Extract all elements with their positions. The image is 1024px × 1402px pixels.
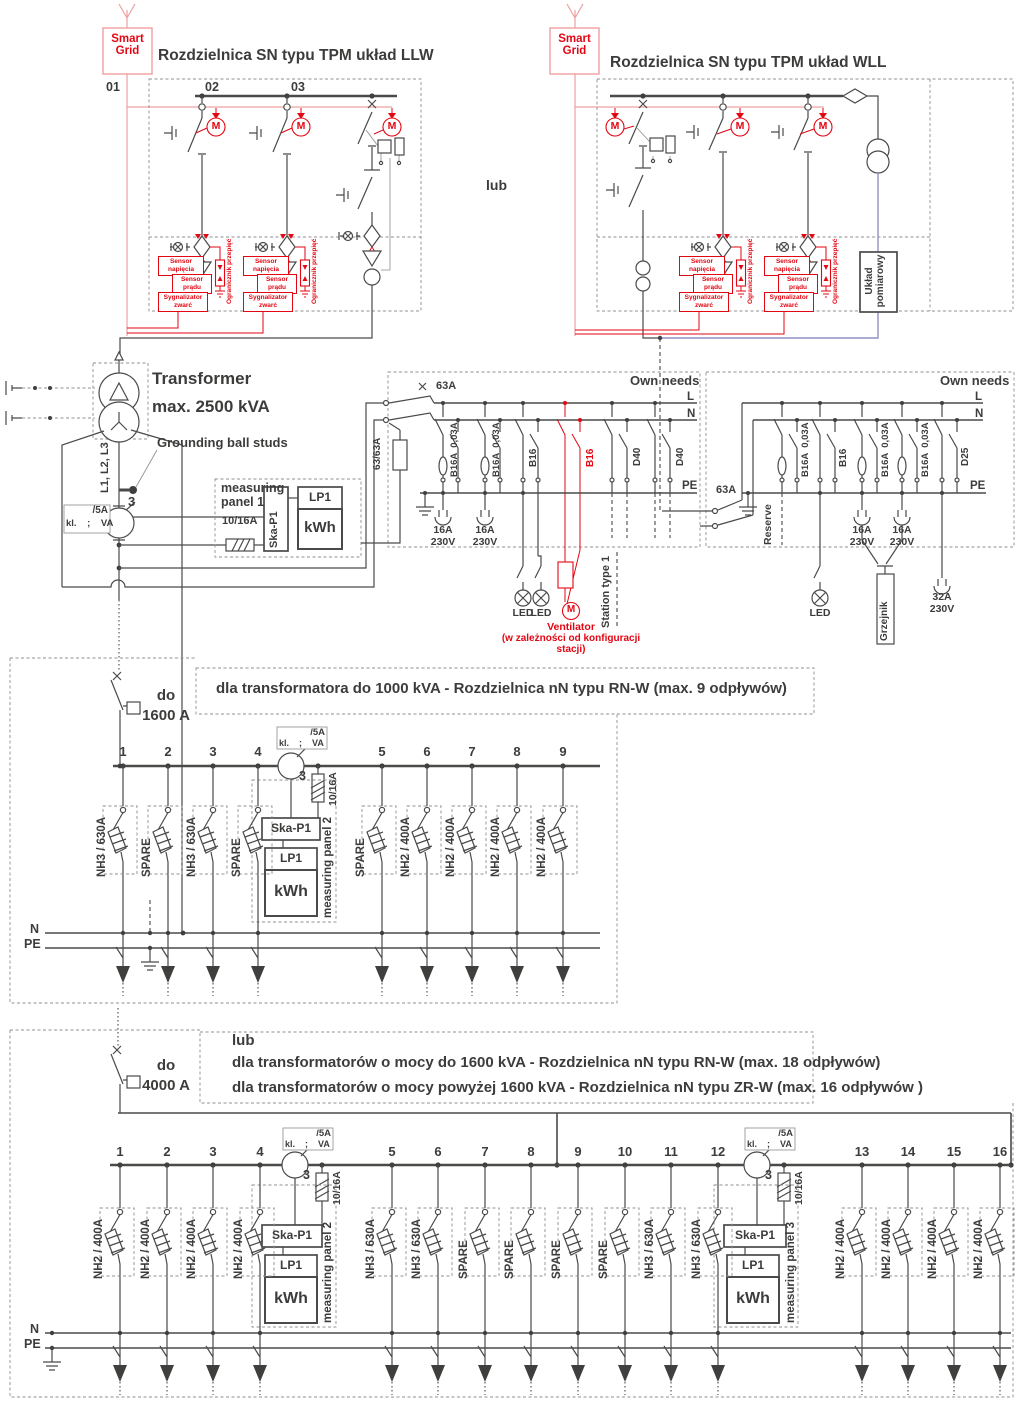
socket-volt-label: 230V xyxy=(842,537,882,548)
nn2-feeder-no: 6 xyxy=(426,1145,450,1159)
metering-system-label: Układ pomiarowy xyxy=(865,253,887,309)
own-right-L: L xyxy=(975,391,982,403)
nn1-feeder-no: 7 xyxy=(460,745,484,759)
short-circuit-indicator-label: Sygnalizator zwarć xyxy=(158,292,208,312)
nn2-feeder-label: NH2 / 400A xyxy=(835,1219,847,1279)
ventilator-note: (w zależności od konfiguracji stacji) xyxy=(498,634,644,656)
nn1-feeder-label: SPARE xyxy=(141,838,153,877)
nn1-feeder-label: SPARE xyxy=(355,838,367,877)
own-left-main-switch: 63A xyxy=(436,381,456,393)
nn1-feeder-label: NH2 / 400A xyxy=(490,817,502,877)
nn2-fuse1-label: 10/16A xyxy=(332,1171,343,1205)
sensor-current-label: Sensor prądu xyxy=(778,274,818,294)
nn2-feeder-label: NH3 / 630A xyxy=(411,1219,423,1279)
nn2-panel3-lp: LP1 xyxy=(727,1259,779,1272)
smart-grid-box-right: Smart Grid xyxy=(551,33,598,58)
nn1-ct-ratio-top: /5A xyxy=(279,728,325,738)
sensor-voltage-label: Sensor napięcia xyxy=(764,256,810,276)
panel1-lp-label: LP1 xyxy=(298,491,342,504)
nn1-feeder-no: 1 xyxy=(111,745,135,759)
own-right-N: N xyxy=(975,408,983,420)
nn2-feeder-no: 8 xyxy=(519,1145,543,1159)
nn2-feeder-no: 4 xyxy=(248,1145,272,1159)
nn1-ct-ratio-bottom: kl. ; VA xyxy=(279,739,325,749)
nn2-N: N xyxy=(30,1323,39,1337)
single-line-diagram: Smart Grid Smart Grid Rozdzielnica SN ty… xyxy=(0,0,1024,1402)
nn1-feeder-no: 9 xyxy=(551,745,575,759)
nn2-PE: PE xyxy=(24,1338,41,1352)
nn2-feeder-label: NH2 / 400A xyxy=(140,1219,152,1279)
panel1-ska-label: Ska-P1 xyxy=(269,511,281,548)
transformer-name: Transformer xyxy=(152,370,251,388)
nn1-panel-ska: Ska-P1 xyxy=(262,822,320,835)
nn1-fuse-label: 10/16A xyxy=(328,772,339,806)
nn1-rating: 1600 A xyxy=(131,708,201,724)
sensor-current-label: Sensor prądu xyxy=(257,274,297,294)
nn2-feeder-no: 5 xyxy=(380,1145,404,1159)
sensor-voltage-label: Sensor napięcia xyxy=(679,256,725,276)
nn2-panel2-ska: Ska-P1 xyxy=(262,1229,322,1242)
nn1-feeder-label: SPARE xyxy=(231,838,243,877)
panel1-fuse-label: 10/16A xyxy=(222,516,257,528)
nn2-feeder-label: SPARE xyxy=(458,1240,470,1279)
nn2-ct2-ratio-bottom: kl. ; VA xyxy=(747,1140,793,1150)
nn2-rating-prefix: do xyxy=(146,1058,186,1074)
motor-drive-llw-2: M xyxy=(293,121,309,132)
nn2-feeder-label: SPARE xyxy=(598,1240,610,1279)
own-left-riser-fuse: 63/63A xyxy=(373,438,384,470)
own-left-d40a-label: D40 xyxy=(633,448,644,466)
nn1-feeder-no: 4 xyxy=(246,745,270,759)
nn2-panel3-ska: Ska-P1 xyxy=(724,1229,786,1242)
led-lamp-label: LED xyxy=(808,608,832,619)
nn2-feeder-label: NH2 / 400A xyxy=(973,1219,985,1279)
sensor-current-label: Sensor prądu xyxy=(172,274,212,294)
nn2-feeder-no: 3 xyxy=(201,1145,225,1159)
motor-drive-wll-1: M xyxy=(607,121,623,132)
ct-count-transformer: 3 xyxy=(128,495,135,509)
surge-arrester-label: Ogranicznik przepięć xyxy=(832,239,839,304)
nn1-feeder-label: NH2 / 400A xyxy=(400,817,412,877)
nn2-feeder-no: 7 xyxy=(473,1145,497,1159)
nn2-feeder-no: 1 xyxy=(108,1145,132,1159)
surge-arrester-label: Ogranicznik przepięć xyxy=(226,239,233,304)
socket-amp-label: 16A xyxy=(842,525,882,536)
own-left-b16-label: B16 xyxy=(529,449,540,467)
own-right-PE: PE xyxy=(970,480,985,492)
nn2-panel2-title: measuring panel 2 xyxy=(322,1222,334,1323)
nn2-feeder-no: 11 xyxy=(659,1145,683,1159)
transformer-rating: max. 2500 kVA xyxy=(152,398,270,416)
own-needs-left xyxy=(361,372,700,628)
bay-number-02: 02 xyxy=(205,81,219,95)
nn1-feeder-label: NH3 / 630A xyxy=(186,817,198,877)
nn2-feeder-no: 10 xyxy=(613,1145,637,1159)
own-right-rcd3-label: B16A 0,03A xyxy=(921,422,931,477)
nn1-title: dla transformatora do 1000 kVA - Rozdzie… xyxy=(216,681,787,697)
surge-arrester-label: Ogranicznik przepięć xyxy=(747,239,754,304)
nn1-feeder-no: 2 xyxy=(156,745,180,759)
llw-title: Rozdzielnica SN typu TPM układ LLW xyxy=(158,48,434,65)
nn2-feeder-label: SPARE xyxy=(551,1240,563,1279)
nn1-panel-lp: LP1 xyxy=(265,852,317,865)
nn2-ct1-ratio-bottom: kl. ; VA xyxy=(285,1140,331,1150)
motor-drive-wll-2: M xyxy=(732,121,748,132)
own-left-rcd2-label: B16A 0,03A xyxy=(492,422,502,477)
socket-amp-label: 16A xyxy=(465,525,505,536)
nn1-ct-count: 3 xyxy=(299,770,306,784)
ct-ratio-bottom: kl. ; VA xyxy=(66,519,108,529)
nn1-panel-title: measuring panel 2 xyxy=(322,817,334,918)
own-right-rcd2-label: B16A 0,03A xyxy=(881,422,891,477)
bay-number-01: 01 xyxy=(106,81,120,95)
nn1-feeder-label: NH2 / 400A xyxy=(445,817,457,877)
ct-ratio-top: /5A xyxy=(66,506,108,517)
grounding-ball-studs-label: Grounding ball studs xyxy=(157,436,288,450)
own-right-d25-label: D25 xyxy=(961,448,972,466)
nn1-feeder-no: 8 xyxy=(505,745,529,759)
nn2-ct1-count: 3 xyxy=(303,1169,310,1183)
sensor-voltage-label: Sensor napięcia xyxy=(243,256,289,276)
nn2-title2: dla transformatorów o mocy powyżej 1600 … xyxy=(232,1080,923,1096)
nn2-panel2-lp: LP1 xyxy=(265,1259,317,1272)
own-left-rcd1-label: B16A 0,03A xyxy=(450,422,460,477)
short-circuit-indicator-label: Sygnalizator zwarć xyxy=(764,292,814,312)
sensor-voltage-label: Sensor napięcia xyxy=(158,256,204,276)
nn2-panel3-title: measuring panel 3 xyxy=(785,1222,797,1323)
nn2-panel2-kwh: kWh xyxy=(265,1290,317,1307)
own-right-reserve-label: Reserve xyxy=(763,504,774,545)
socket-amp-label: 16A xyxy=(423,525,463,536)
nn2-feeder-label: NH2 / 400A xyxy=(186,1219,198,1279)
own-left-PE: PE xyxy=(682,480,697,492)
own-right-main-switch: 63A xyxy=(716,485,736,497)
nn2-rating: 4000 A xyxy=(128,1078,204,1094)
nn2-ct1-ratio-top: /5A xyxy=(285,1129,331,1139)
transformer-section xyxy=(6,352,383,1046)
station-type-label: Station type 1 xyxy=(601,556,613,628)
nn2-title1: dla transformatorów o mocy do 1600 kVA -… xyxy=(232,1055,880,1071)
own-needs-right-title: Own needs xyxy=(940,374,1009,388)
socket-volt-label: 230V xyxy=(465,537,505,548)
motor-drive-llw-3: M xyxy=(384,121,400,132)
socket32-amp-label: 32A xyxy=(922,592,962,603)
nn1-rating-prefix: do xyxy=(146,688,186,704)
heater-label: Grzejnik xyxy=(880,602,891,641)
nn2-ct2-ratio-top: /5A xyxy=(747,1129,793,1139)
led-lamp-label: LED xyxy=(529,608,553,619)
own-needs-left-title: Own needs xyxy=(630,374,699,388)
own-left-d40b-label: D40 xyxy=(676,448,687,466)
nn2-feeder-label: NH2 / 400A xyxy=(927,1219,939,1279)
nn2-feeder-no: 15 xyxy=(942,1145,966,1159)
nn2-or-label: lub xyxy=(232,1033,255,1049)
nn2-feeder-no: 16 xyxy=(988,1145,1012,1159)
nn2-fuse2-label: 10/16A xyxy=(794,1171,805,1205)
nn1-panel-kwh: kWh xyxy=(265,883,317,900)
socket32-volt-label: 230V xyxy=(922,604,962,615)
nn2-feeder-label: NH2 / 400A xyxy=(93,1219,105,1279)
wll-title: Rozdzielnica SN typu TPM układ WLL xyxy=(610,55,886,72)
own-left-L: L xyxy=(687,391,694,403)
nn2-feeder-label: NH3 / 630A xyxy=(691,1219,703,1279)
short-circuit-indicator-label: Sygnalizator zwarć xyxy=(679,292,729,312)
nn2-panel3-kwh: kWh xyxy=(727,1290,779,1307)
nn1-feeder-label: NH3 / 630A xyxy=(96,817,108,877)
smart-grid-box-left: Smart Grid xyxy=(104,33,151,58)
nn2-feeder-label: NH2 / 400A xyxy=(881,1219,893,1279)
nn1-N: N xyxy=(30,923,39,937)
short-circuit-indicator-label: Sygnalizator zwarć xyxy=(243,292,293,312)
nn2-feeder-label: SPARE xyxy=(504,1240,516,1279)
ventilator-motor-letter: M xyxy=(563,605,579,616)
nn1-feeder-no: 5 xyxy=(370,745,394,759)
motor-drive-wll-3: M xyxy=(815,121,831,132)
own-left-N: N xyxy=(687,408,695,420)
own-right-rcd1-label: B16A 0,03A xyxy=(801,422,811,477)
nn2-feeder-label: NH2 / 400A xyxy=(233,1219,245,1279)
nn1-PE: PE xyxy=(24,938,41,952)
nn2-ct2-count: 3 xyxy=(765,1169,772,1183)
or-label-top: lub xyxy=(486,178,507,193)
nn1-feeder-no: 6 xyxy=(415,745,439,759)
nn1-feeder-no: 3 xyxy=(201,745,225,759)
surge-arrester-label: Ogranicznik przepięć xyxy=(311,239,318,304)
panel1-kwh-label: kWh xyxy=(298,520,342,536)
nn1-feeder-label: NH2 / 400A xyxy=(536,817,548,877)
motor-drive-llw-1: M xyxy=(208,121,224,132)
socket-volt-label: 230V xyxy=(423,537,463,548)
nn2-feeder-no: 9 xyxy=(566,1145,590,1159)
socket-amp-label: 16A xyxy=(882,525,922,536)
sensor-current-label: Sensor prądu xyxy=(693,274,733,294)
nn2-feeder-label: NH3 / 630A xyxy=(644,1219,656,1279)
socket-volt-label: 230V xyxy=(882,537,922,548)
nn2-feeder-no: 2 xyxy=(155,1145,179,1159)
bay-number-03: 03 xyxy=(291,81,305,95)
own-left-b16-red-label: B16 xyxy=(586,449,597,467)
nn2-feeder-no: 13 xyxy=(850,1145,874,1159)
own-right-b16-label: B16 xyxy=(839,449,850,467)
phase-label: L1, L2, L3 xyxy=(100,442,112,493)
nn2-feeder-label: NH3 / 630A xyxy=(365,1219,377,1279)
nn2-feeder-no: 12 xyxy=(706,1145,730,1159)
nn2-feeder-no: 14 xyxy=(896,1145,920,1159)
